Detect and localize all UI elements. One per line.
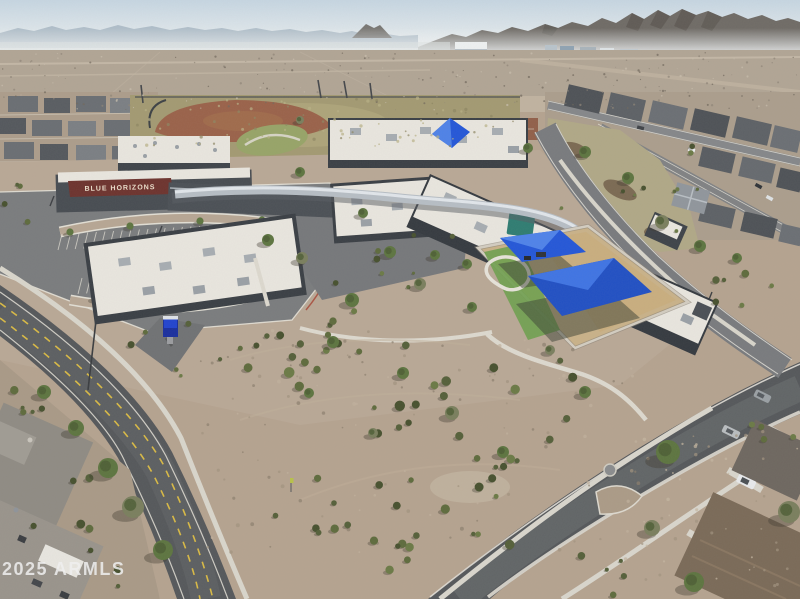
school-sign-text: BLUE HORIZONS bbox=[69, 181, 171, 197]
scene-canvas bbox=[0, 0, 800, 599]
watermark: 2025 ARMLS bbox=[2, 559, 125, 580]
aerial-photo: BLUE HORIZONS 2025 ARMLS bbox=[0, 0, 800, 599]
photo-grain bbox=[0, 48, 800, 599]
